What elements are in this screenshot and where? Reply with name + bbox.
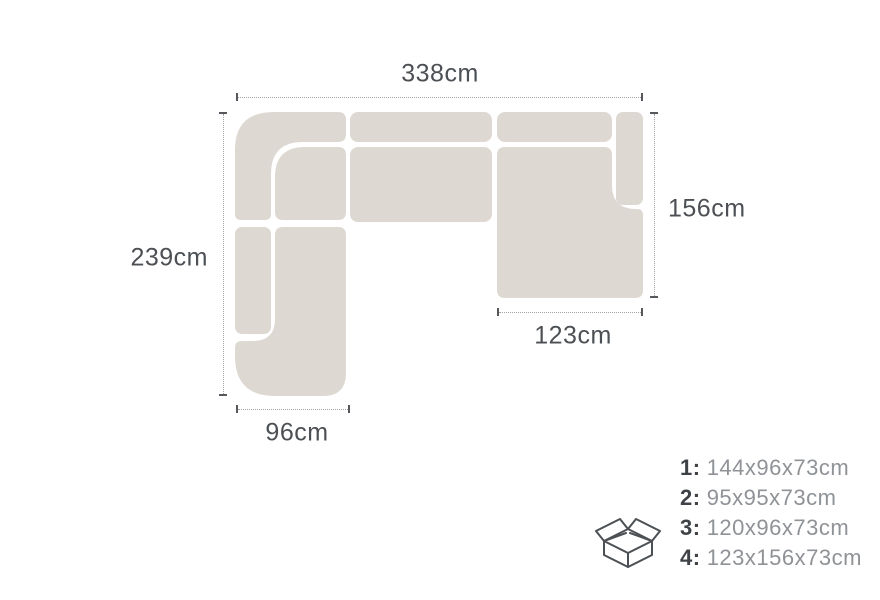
legend-item: 1: 144x96x73cm xyxy=(680,453,862,483)
dim-line-right xyxy=(650,112,658,298)
dim-label-bottom-right: 123cm xyxy=(534,322,612,351)
dim-dots xyxy=(223,114,224,394)
dim-tick xyxy=(348,405,350,413)
legend-item-dimensions: 95x95x73cm xyxy=(707,485,837,510)
dim-line-bottom-left xyxy=(236,405,350,413)
dim-dots xyxy=(238,409,348,410)
dim-label-left: 239cm xyxy=(130,244,208,273)
dim-dots xyxy=(654,114,655,296)
sofa-right-back-cushion xyxy=(497,112,612,142)
legend-item-number: 3: xyxy=(680,515,701,540)
legend-item: 3: 120x96x73cm xyxy=(680,513,862,543)
legend-item: 2: 95x95x73cm xyxy=(680,483,862,513)
legend-item-dimensions: 144x96x73cm xyxy=(707,455,849,480)
legend-item-dimensions: 120x96x73cm xyxy=(707,515,849,540)
legend-item-dimensions: 123x156x73cm xyxy=(707,545,862,570)
legend-item-number: 1: xyxy=(680,455,701,480)
dim-line-bottom-right xyxy=(497,308,643,316)
dim-label-top: 338cm xyxy=(401,60,479,89)
legend-item: 4: 123x156x73cm xyxy=(680,543,862,573)
dim-line-top xyxy=(236,93,643,101)
dim-label-bottom-left: 96cm xyxy=(265,419,328,448)
dim-tick xyxy=(219,394,227,396)
sofa-corner-seat xyxy=(275,147,346,220)
sofa-middle-back-cushion xyxy=(350,112,492,142)
legend-item-number: 2: xyxy=(680,485,701,510)
legend-item-number: 4: xyxy=(680,545,701,570)
dim-dots xyxy=(499,312,641,313)
sofa-left-side-back xyxy=(235,227,271,334)
dim-label-right: 156cm xyxy=(668,195,746,224)
sofa-dimension-diagram: 338cm 239cm 156cm 123cm 96cm 1: 144x96x7… xyxy=(0,0,880,600)
dim-dots xyxy=(238,97,641,98)
dim-line-left xyxy=(219,112,227,396)
dim-tick xyxy=(641,93,643,101)
open-box-icon xyxy=(595,512,661,574)
dim-tick xyxy=(650,296,658,298)
packaging-legend: 1: 144x96x73cm 2: 95x95x73cm 3: 120x96x7… xyxy=(680,453,862,573)
sofa-right-armrest xyxy=(616,112,643,205)
sofa-middle-seat xyxy=(350,147,492,222)
dim-tick xyxy=(641,308,643,316)
